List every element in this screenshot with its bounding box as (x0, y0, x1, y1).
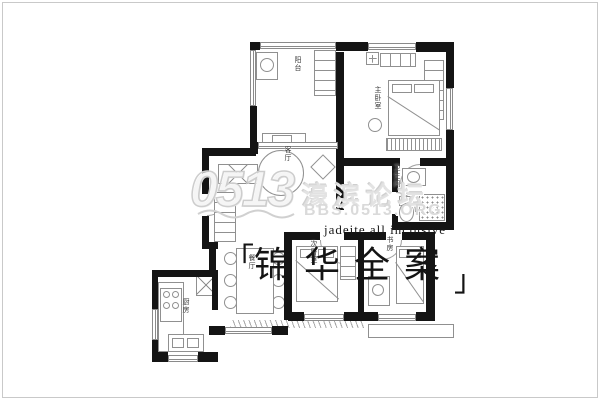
burner (163, 302, 170, 309)
window (260, 42, 336, 49)
wall-segment (420, 158, 454, 166)
window (168, 355, 198, 362)
wall-segment (202, 148, 256, 156)
wall-segment (152, 277, 158, 309)
burner (163, 291, 170, 298)
wall-segment (250, 42, 260, 50)
wall-segment (446, 50, 454, 88)
wall-segment (288, 312, 304, 321)
brand-bracket-right: 」 (454, 265, 484, 298)
window (152, 309, 158, 340)
radiator (386, 138, 442, 151)
balcony-sliding-door (258, 142, 338, 149)
window (368, 43, 416, 50)
wall-segment (152, 270, 216, 277)
wall-segment (198, 352, 218, 362)
window (304, 314, 344, 321)
watermark-forum-url: BBS.0513.ORG (304, 202, 443, 220)
wall-segment (202, 242, 218, 249)
brand-name: 锦华全案 (254, 245, 454, 285)
bay-platform (368, 324, 454, 338)
brand-slogan: 「锦华全案」 (224, 234, 484, 300)
window (378, 314, 416, 321)
bedside-table (368, 118, 382, 132)
room-label-master-bedroom: 主卧室 (374, 86, 381, 110)
ceiling-light-symbol (366, 52, 379, 65)
burner (172, 291, 179, 298)
window (250, 50, 256, 106)
wall-segment (344, 312, 378, 321)
wall-segment (446, 130, 454, 230)
wall-segment (272, 326, 288, 335)
pillow (392, 84, 412, 93)
pillow (414, 84, 434, 93)
wall-segment (209, 326, 225, 335)
wall-segment (212, 270, 218, 310)
window (446, 88, 453, 130)
watermark-wave-icon (196, 206, 296, 220)
burner (172, 302, 179, 309)
room-label-living-room: 客厅 (284, 146, 291, 162)
window (225, 327, 272, 334)
balcony-cabinet (314, 50, 336, 96)
brand-bracket-left: 「 (224, 243, 254, 276)
wall-segment (336, 42, 368, 51)
wall-segment (336, 158, 400, 166)
sink-basin-right (187, 338, 199, 348)
floor-plan-image: 阳台 主卧室 客厅 卫生间 餐厅 厨房 次卧室 书房 0513 濠滨论坛 BBS… (0, 0, 600, 400)
washing-machine-drum (260, 58, 274, 72)
room-label-kitchen: 厨房 (182, 298, 189, 314)
room-label-balcony: 阳台 (294, 56, 301, 72)
wall-segment (152, 352, 168, 362)
wall-segment (416, 312, 435, 321)
sink-basin-left (172, 338, 184, 348)
master-wardrobe-top (380, 53, 416, 67)
